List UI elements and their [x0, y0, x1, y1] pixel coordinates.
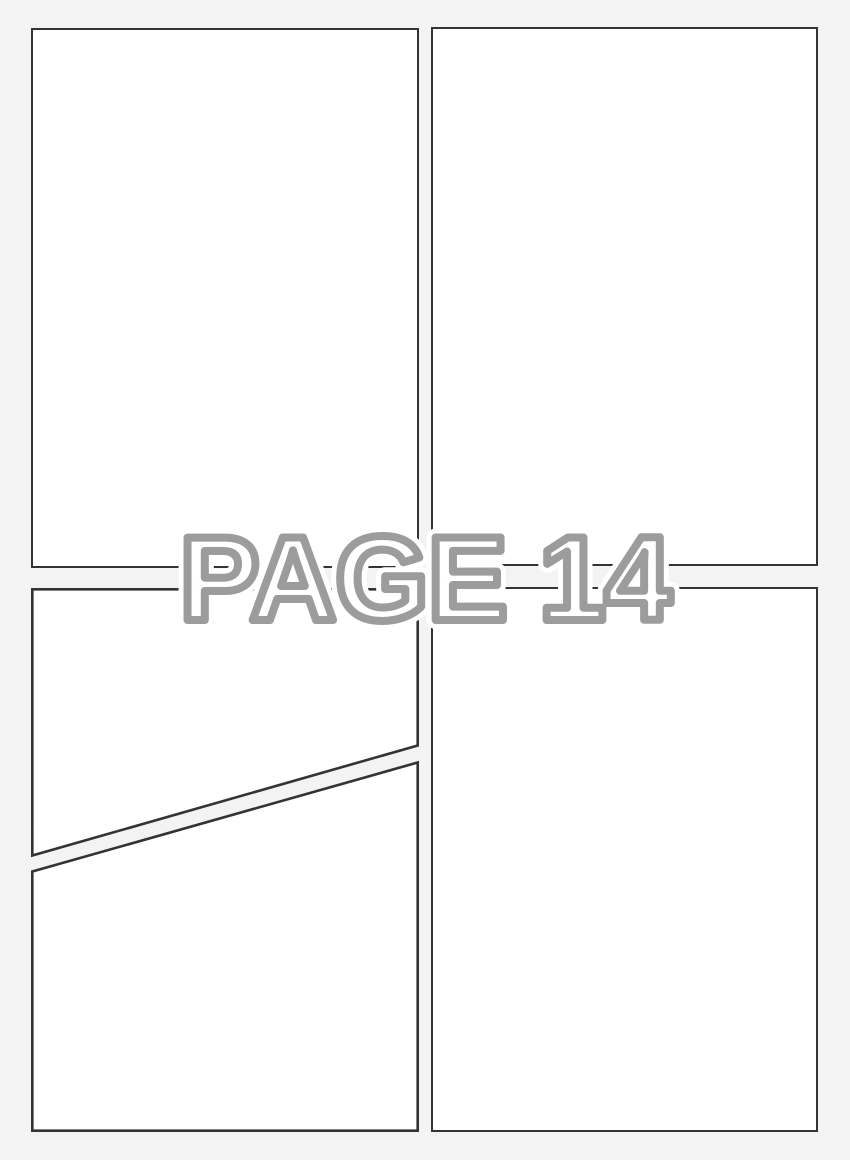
panel-top-left [31, 28, 419, 568]
panel-bottom-right [431, 587, 818, 1132]
panel-top-right [431, 27, 818, 566]
panel-group-bottom-left [31, 588, 419, 1132]
comic-page-template: PAGE 14 PAGE 14 PAGE 14 [0, 0, 850, 1160]
